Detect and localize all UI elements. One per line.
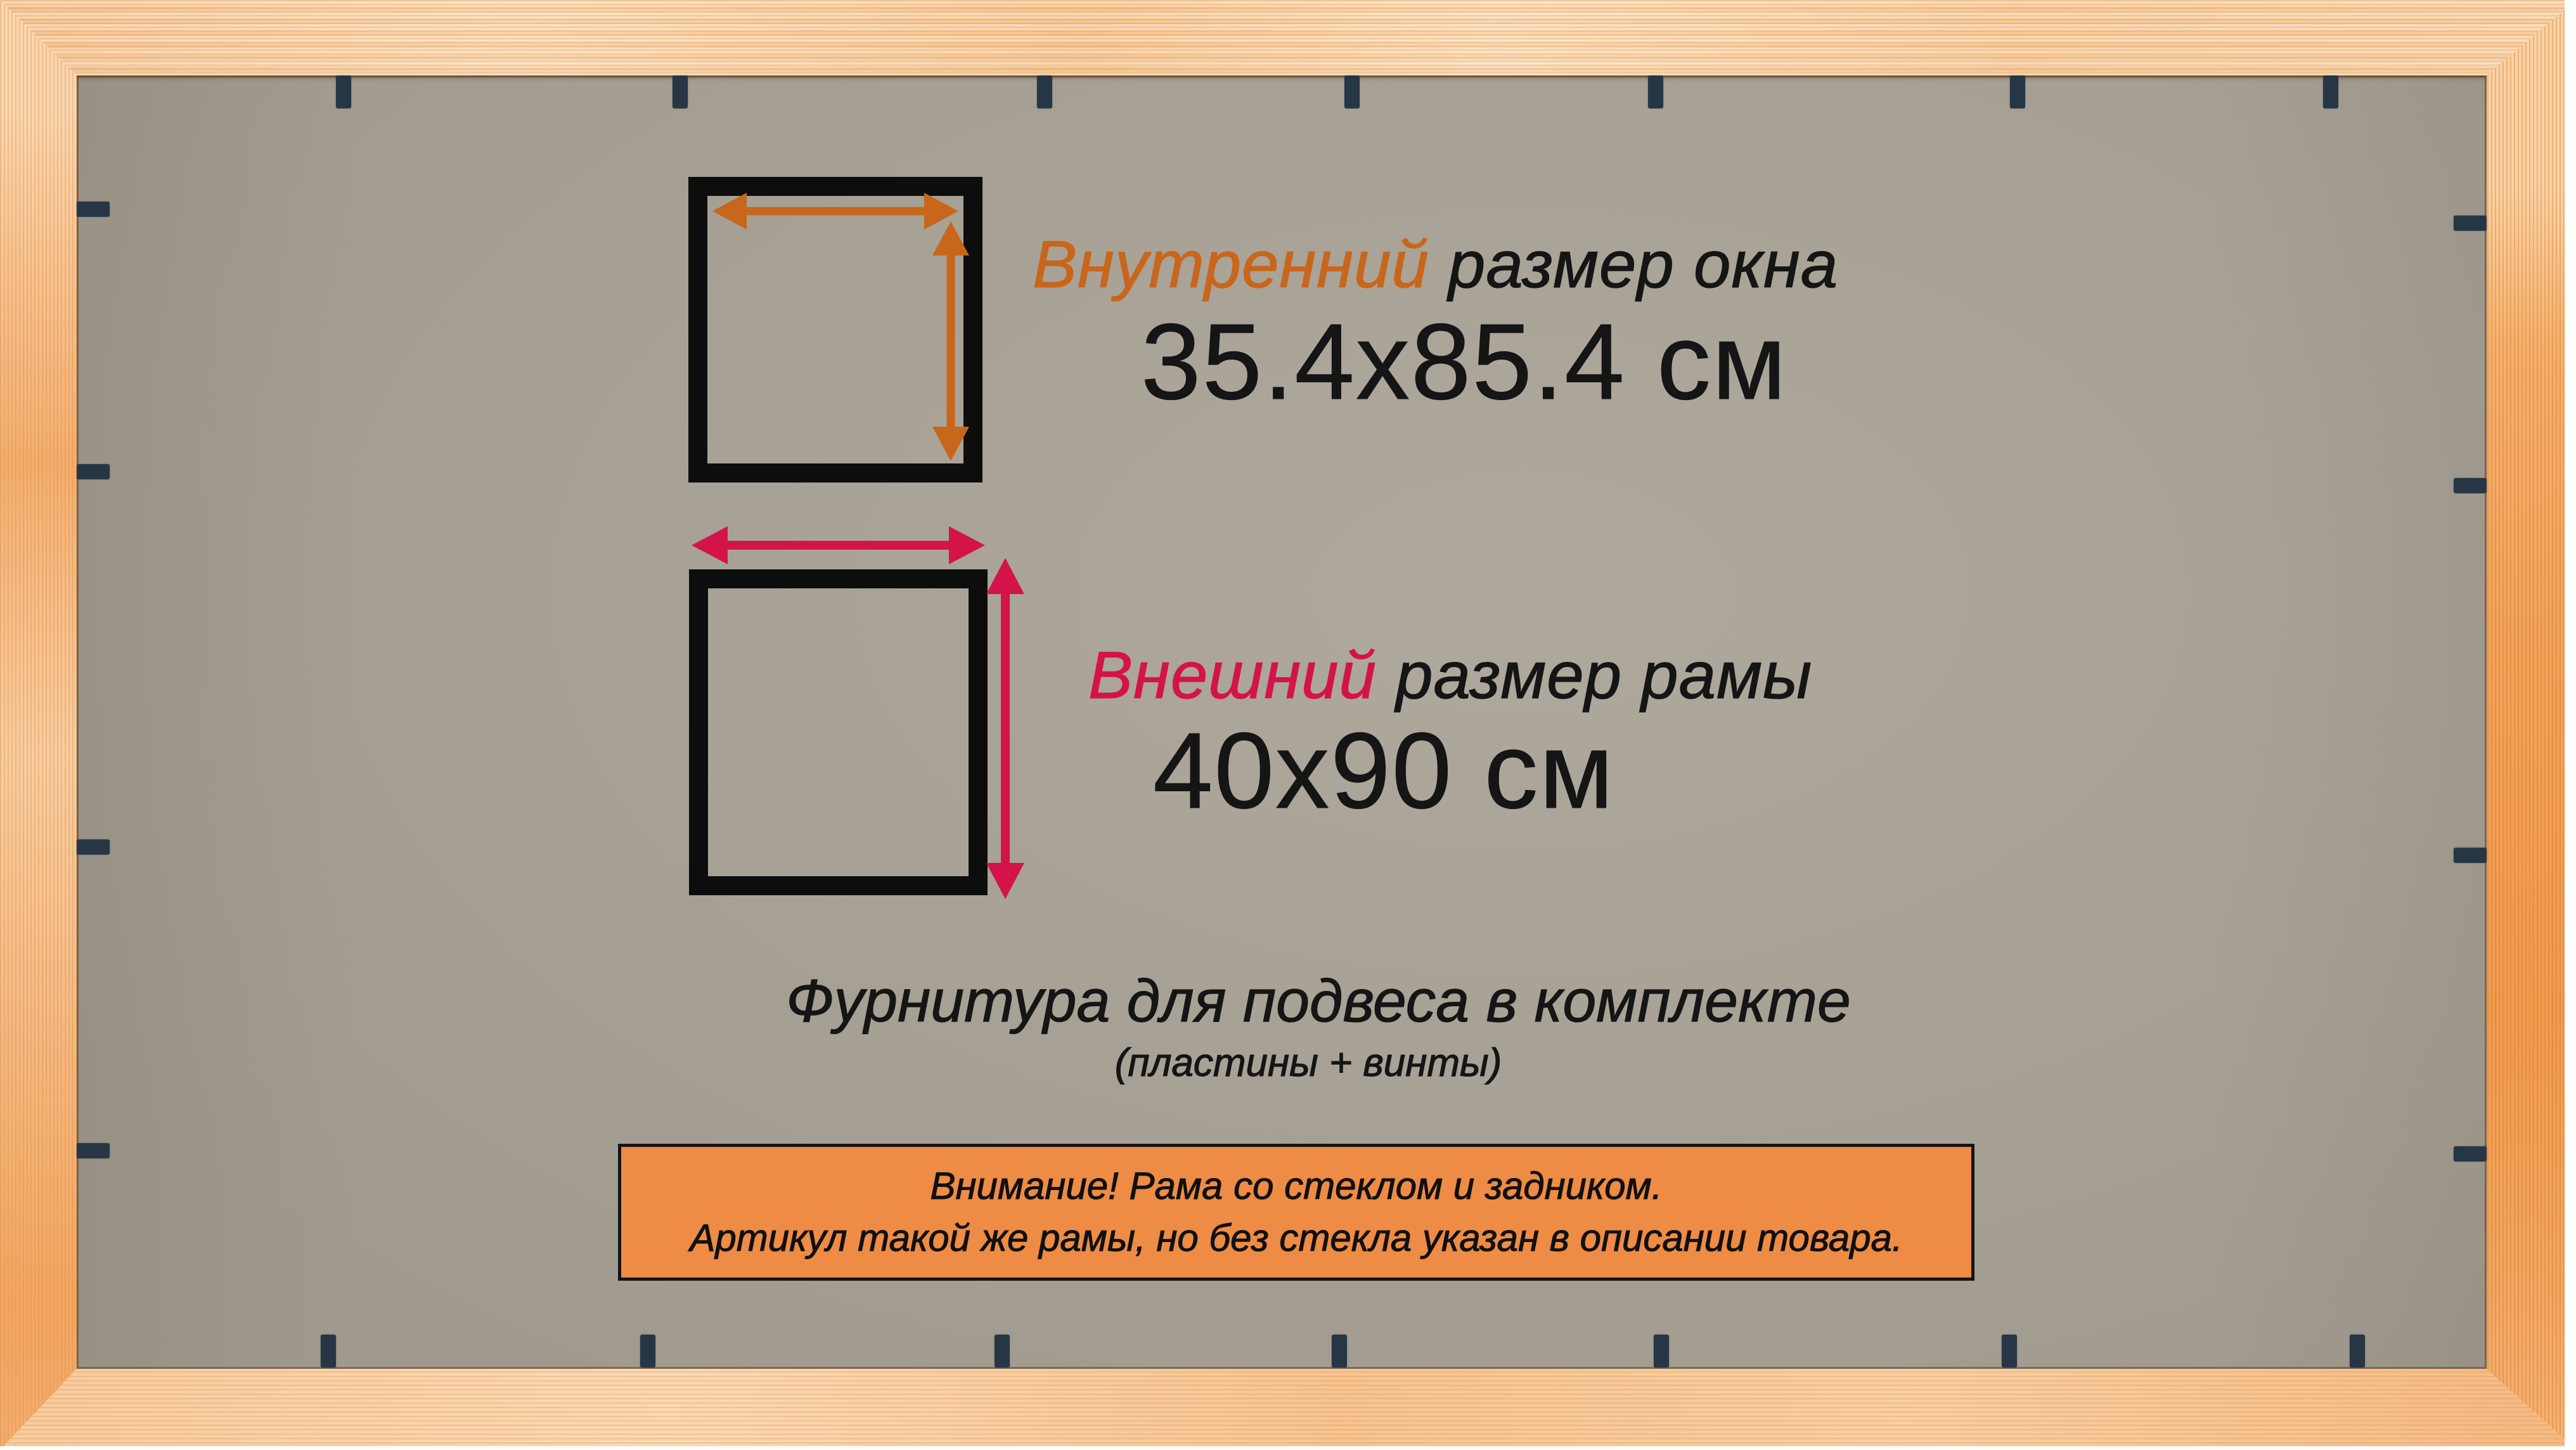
retainer-clip: [2454, 478, 2487, 493]
retainer-clip: [321, 1335, 336, 1368]
outer-size-title-accent: Внешний: [1088, 638, 1377, 713]
retainer-clip: [2454, 1146, 2487, 1162]
retainer-clip: [77, 1143, 110, 1158]
retainer-clip: [336, 75, 351, 108]
frame-back-product-photo: Внутренний размер окна 35.4x85.4 см Внеш…: [0, 0, 2576, 1450]
retainer-clip: [1332, 1335, 1347, 1368]
retainer-clip: [673, 75, 688, 108]
inner-size-title: Внутренний размер окна: [1033, 231, 1838, 298]
outer-frame-square-diagram: [689, 569, 988, 895]
retainer-clip: [2350, 1335, 2365, 1368]
outer-size-title-rest: размер рамы: [1377, 638, 1812, 713]
retainer-clip: [995, 1335, 1010, 1368]
retainer-clip: [1654, 1335, 1669, 1368]
notice-line2: Артикул такой же рамы, но без стекла ука…: [690, 1219, 1902, 1257]
inner-size-title-accent: Внутренний: [1033, 228, 1429, 302]
photo-edge-right: [2565, 0, 2576, 1450]
outer-size-value: 40x90 см: [1153, 717, 1614, 825]
notice-line1: Внимание! Рама со стеклом и задником.: [931, 1167, 1663, 1205]
retainer-clip: [2010, 75, 2025, 108]
retainer-clip: [1037, 75, 1052, 108]
notice-banner: Внимание! Рама со стеклом и задником. Ар…: [618, 1144, 1974, 1281]
retainer-clip: [1344, 75, 1360, 108]
inner-window-square-diagram: [688, 177, 982, 482]
inner-size-value: 35.4x85.4 см: [1141, 308, 1787, 416]
retainer-clip: [2323, 75, 2338, 108]
retainer-clip: [1648, 75, 1663, 108]
photo-edge-bottom: [0, 1446, 2576, 1450]
retainer-clip: [77, 202, 110, 217]
outer-size-title: Внешний размер рамы: [1088, 642, 1812, 709]
hardware-note-line1: Фурнитура для подвеса в комплекте: [786, 971, 1851, 1032]
inner-size-title-rest: размер окна: [1429, 228, 1838, 302]
retainer-clip: [2454, 848, 2487, 863]
retainer-clip: [2002, 1335, 2017, 1368]
retainer-clip: [640, 1335, 655, 1368]
retainer-clip: [77, 839, 110, 855]
retainer-clip: [2454, 216, 2487, 231]
hardware-note-line2: (пластины + винты): [1115, 1044, 1502, 1083]
retainer-clip: [77, 464, 110, 479]
